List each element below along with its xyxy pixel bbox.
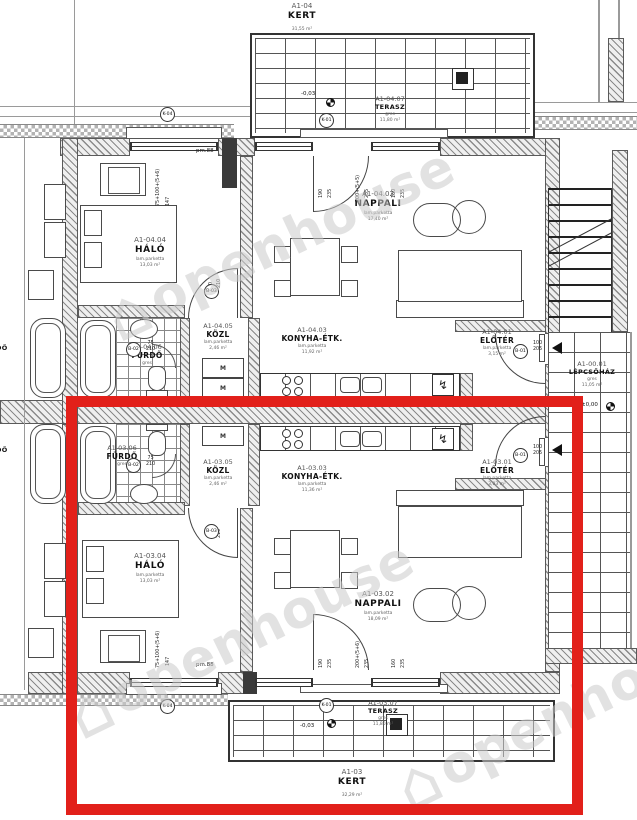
dim-text: 147	[166, 166, 171, 206]
level-marker-label: ±0,00	[581, 402, 598, 408]
door-tag: B-02	[126, 342, 141, 357]
room-area: 11,92 m²	[282, 350, 343, 356]
room-finish: gres	[0, 352, 8, 358]
dim-h: 210	[146, 347, 155, 353]
room-name: LÉPCSŐHÁZ	[569, 368, 615, 376]
wall	[78, 305, 185, 318]
highlight-box	[66, 396, 583, 815]
stove-burner-icon	[294, 376, 303, 385]
level-marker-label: -0,03	[301, 91, 315, 97]
room-name: FÜRDŐ	[0, 446, 8, 454]
room-name: FÜRDŐ	[0, 344, 8, 352]
room-label-kozl-top: A1-04.05 KÖZL lam.parketta 2,46 m²	[203, 322, 233, 352]
armchair-icon	[100, 163, 146, 196]
electrical-panel-icon: ↯	[432, 374, 454, 396]
room-label-nappali-top: A1-04.02 NAPPALI lam.parketta 17,40 m²	[354, 190, 401, 222]
dim-w: 100	[533, 341, 542, 347]
room-code: A1-04.07	[375, 95, 405, 103]
room-area: 11,80 m²	[375, 118, 405, 124]
room-area: 31,55 m²	[288, 27, 316, 33]
dryer-icon: M	[202, 378, 244, 398]
level-marker-icon	[326, 98, 335, 107]
neighbor-wall-line	[24, 424, 25, 690]
room-area: 13,03 m²	[134, 263, 166, 269]
room-label-garden-top: A1-04 KERT 31,55 m²	[288, 2, 316, 33]
room-area: 17,40 m²	[354, 217, 401, 223]
room-finish: gres	[131, 361, 162, 367]
room-label-terrace-top: A1-04.07 TERASZ gres 11,80 m²	[375, 95, 405, 124]
room-name: TERASZ	[375, 103, 405, 111]
site-line	[535, 112, 637, 113]
floor-plan: -0,03 K-01 A1-04.07 TERASZ gres 11,80 m²…	[0, 0, 637, 820]
sink-bowl-icon	[340, 377, 360, 393]
site-line	[535, 102, 637, 103]
dim-w: 75	[146, 341, 155, 347]
wall-pier	[222, 138, 237, 188]
sink-icon	[130, 319, 158, 339]
room-label-eloter-top: A1-04.01 ELŐTÉR lam.parketta 3,15 m²	[480, 328, 514, 358]
chair-icon	[341, 246, 358, 263]
room-area: 11,05 m²	[569, 383, 615, 389]
stove-burner-icon	[294, 387, 303, 396]
room-code: A1-04.01	[480, 328, 514, 336]
dim-text: 190	[319, 158, 324, 198]
chair-icon	[274, 280, 291, 297]
dining-table-icon	[290, 238, 340, 296]
room-code: A1-04.05	[203, 322, 233, 330]
site-line	[0, 106, 250, 107]
room-label-neighbor-furdo: FÜRDŐ gres	[0, 344, 8, 358]
dim-text: 235	[328, 158, 333, 198]
stair-outer-line	[598, 0, 600, 102]
room-name: HÁLÓ	[134, 245, 166, 257]
door-tag: B-01	[513, 344, 528, 359]
dim-text: 100 205	[533, 341, 542, 353]
window	[255, 142, 313, 151]
sofa-icon	[398, 250, 522, 302]
window	[371, 142, 440, 151]
window-tag: K-04	[160, 107, 175, 122]
neighbor-wall-line	[24, 138, 25, 424]
dim-text: 235	[401, 158, 406, 198]
wall	[248, 318, 260, 400]
window-tag: K-01	[319, 113, 334, 128]
sink-bowl-icon	[362, 377, 382, 393]
door-tag: B-03	[204, 284, 219, 299]
bathtub-icon	[30, 318, 66, 398]
wall	[612, 150, 628, 332]
wall	[440, 138, 560, 156]
room-finish: gres	[0, 454, 8, 460]
room-code: A1-04.03	[282, 326, 343, 334]
room-label-konyha-top: A1-04.03 KONYHA-ÉTK. lam.parketta 11,92 …	[282, 326, 343, 356]
bathtub-icon	[30, 424, 66, 504]
dim-text: 75+100+(5+6)	[156, 158, 161, 206]
wardrobe-icon	[44, 184, 66, 220]
room-label-halo-top: A1-04.04 HÁLÓ lam.parketta 13,03 m²	[134, 236, 166, 268]
pillow-icon	[84, 210, 102, 236]
wall	[608, 38, 624, 102]
room-name: KONYHA-ÉTK.	[282, 334, 343, 344]
window-sill	[300, 129, 448, 138]
dim-text: pm.88	[196, 148, 214, 154]
washer-icon: M	[202, 358, 244, 378]
room-name: KÖZL	[203, 330, 233, 340]
wardrobe-icon	[44, 222, 66, 258]
room-area: 3,15 m²	[480, 352, 514, 358]
room-label-neighbor-furdo: FÜRDŐ gres	[0, 446, 8, 460]
dim-h: 205	[533, 347, 542, 353]
room-area: 2,46 m²	[203, 346, 233, 352]
retaining-wall	[535, 116, 637, 130]
room-code: A1-04.02	[354, 190, 401, 199]
dim-text: 75 210	[146, 341, 155, 353]
bathtub-icon	[80, 320, 116, 398]
entry-arrow-icon	[552, 342, 562, 354]
toilet-icon	[148, 366, 166, 391]
wall	[240, 156, 253, 318]
chair-icon	[274, 246, 291, 263]
pillow-icon	[84, 242, 102, 268]
room-name: ELŐTÉR	[480, 336, 514, 346]
wardrobe-icon	[44, 581, 66, 617]
room-code: A1-04.04	[134, 236, 166, 245]
dim-text: 210	[217, 258, 222, 288]
wall	[180, 318, 190, 400]
room-name: KERT	[288, 11, 316, 23]
side-table-icon	[452, 200, 486, 234]
outer-wall-line	[630, 332, 632, 648]
stove-burner-icon	[282, 387, 291, 396]
pergola-post	[452, 68, 474, 90]
wardrobe-icon	[44, 543, 66, 579]
room-name: NAPPALI	[354, 199, 401, 211]
stove-burner-icon	[282, 376, 291, 385]
chair-icon	[341, 280, 358, 297]
window-sill	[126, 127, 222, 139]
room-code: A1-04	[288, 2, 316, 11]
tv-cabinet-icon	[396, 300, 524, 318]
room-finish: lam.parketta	[134, 257, 166, 263]
level-marker-icon	[606, 402, 615, 411]
armchair-icon	[28, 270, 54, 300]
room-label-stairwell: A1-00.01 LÉPCSŐHÁZ gres 11,05 m²	[569, 360, 615, 389]
site-line	[0, 116, 250, 117]
armchair-icon	[28, 628, 54, 658]
